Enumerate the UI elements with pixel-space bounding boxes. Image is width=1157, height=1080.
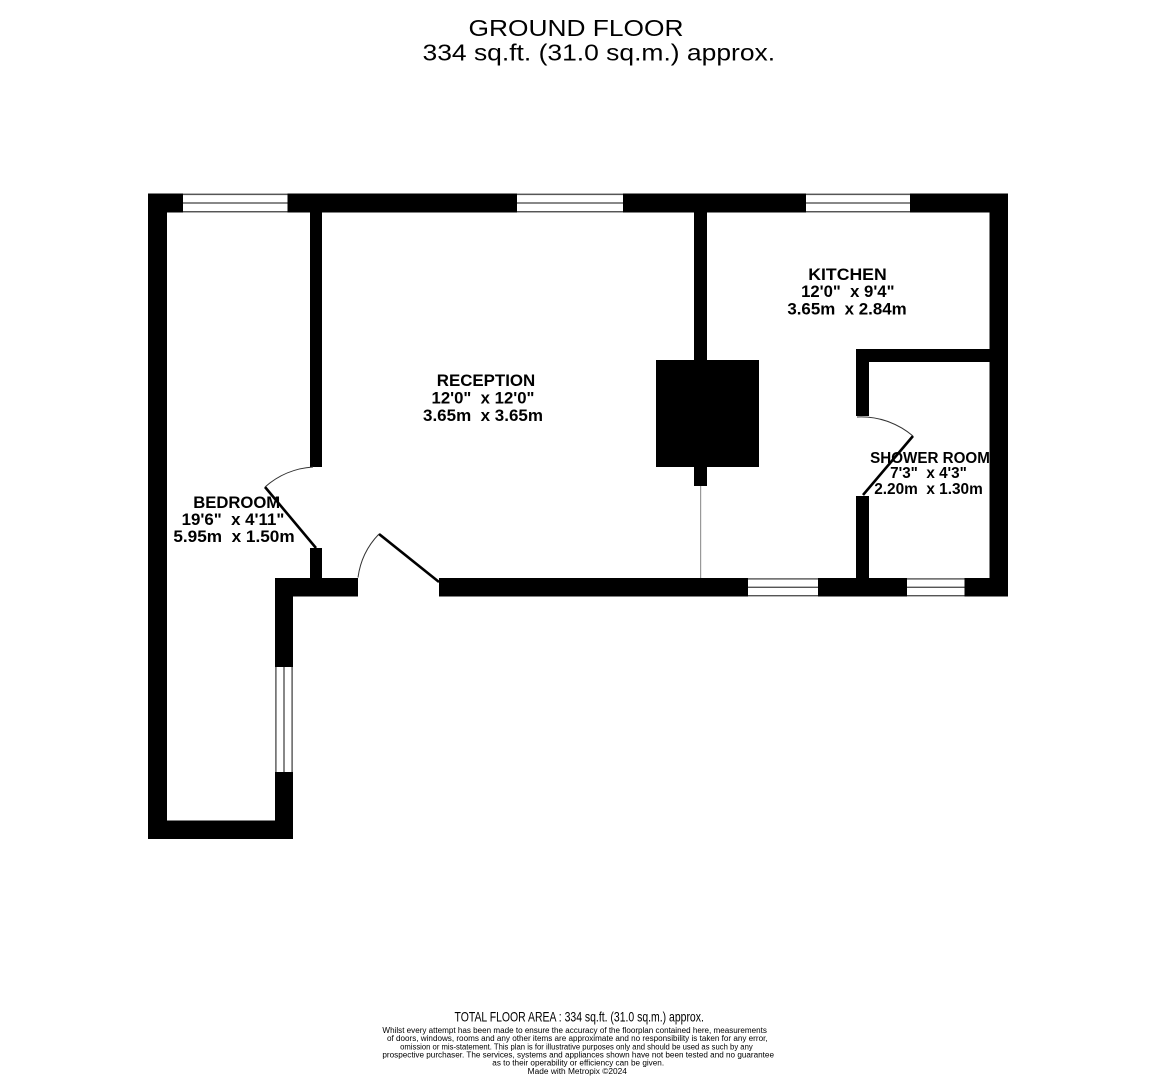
svg-text:RECEPTION: RECEPTION [437, 371, 536, 390]
svg-text:334 sq.ft. (31.0 sq.m.) approx: 334 sq.ft. (31.0 sq.m.) approx. [423, 40, 776, 66]
svg-text:5.95m x 1.50m: 5.95m x 1.50m [173, 527, 294, 546]
svg-text:GROUND FLOOR: GROUND FLOOR [469, 15, 684, 41]
svg-text:12'0" x 12'0": 12'0" x 12'0" [432, 389, 535, 408]
svg-text:3.65m x 2.84m: 3.65m x 2.84m [787, 300, 906, 319]
svg-text:2.20m x 1.30m: 2.20m x 1.30m [874, 481, 983, 498]
svg-text:TOTAL FLOOR AREA : 334 sq.ft.: TOTAL FLOOR AREA : 334 sq.ft. (31.0 sq.m… [455, 1008, 704, 1024]
svg-text:Made with Metropix ©2024: Made with Metropix ©2024 [528, 1067, 628, 1076]
svg-text:7'3" x 4'3": 7'3" x 4'3" [890, 465, 967, 482]
svg-text:3.65m x 3.65m: 3.65m x 3.65m [423, 406, 543, 425]
svg-text:12'0" x 9'4": 12'0" x 9'4" [801, 282, 894, 301]
